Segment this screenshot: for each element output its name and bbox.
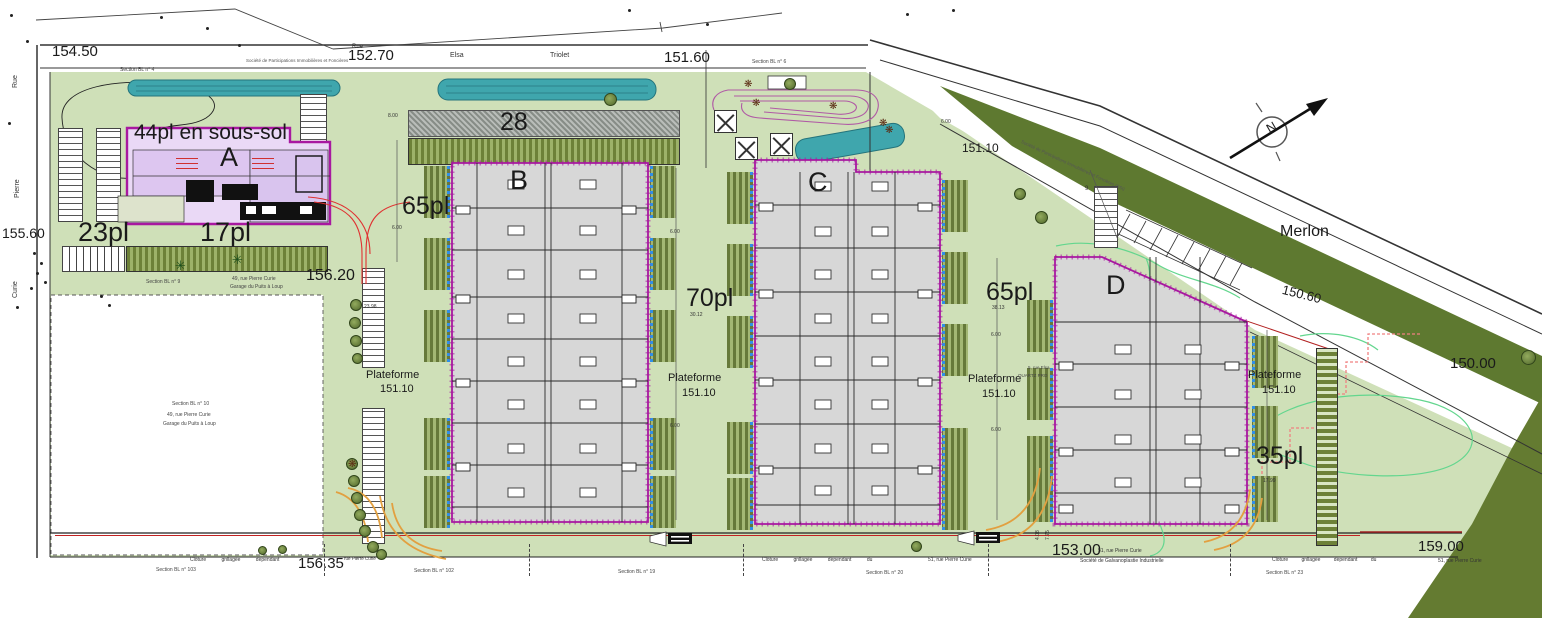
survey-dot	[238, 44, 241, 47]
tree-icon	[278, 545, 287, 554]
tree-icon	[258, 546, 267, 555]
survey-dot	[100, 295, 103, 298]
parking-28: 28	[500, 110, 528, 135]
stair-annotation	[252, 158, 274, 159]
survey-dot	[628, 9, 631, 12]
dim-4-08: 4.08	[1036, 530, 1041, 540]
tree-icon	[911, 541, 922, 552]
section-bl-23: Section BL n° 23	[1266, 571, 1303, 576]
palm-tree-icon: ✳	[175, 260, 186, 273]
dim-17-99: 17.99	[1263, 479, 1276, 484]
survey-dot	[16, 306, 19, 309]
street-triolet: Triolet	[550, 52, 569, 59]
dim-6-00-f: 6.00	[941, 120, 951, 125]
elevation-155-60: 155.60	[2, 226, 45, 240]
stair-annotation	[252, 163, 274, 164]
survey-dot	[706, 23, 709, 26]
dim-30-12: 30.12	[690, 313, 703, 318]
flower-icon: ❋	[885, 126, 893, 136]
section-bl-102: Section BL n° 102	[414, 569, 454, 574]
survey-dot	[160, 16, 163, 19]
tree-icon	[1014, 188, 1026, 200]
tree-icon	[348, 475, 360, 487]
survey-dot	[33, 252, 36, 255]
elevation-150-60: 150.60	[1281, 283, 1323, 305]
survey-dot	[26, 40, 29, 43]
parking-44pl-sous-sol: 44pl en sous-sol	[134, 122, 287, 143]
palm-tree-icon: ✳	[232, 254, 243, 267]
stair-annotation	[176, 168, 198, 169]
tree-icon	[1521, 350, 1536, 365]
stair-annotation	[252, 168, 274, 169]
tree-icon	[354, 509, 366, 521]
cloture-mid: Clôture grillagée dépendant du	[762, 558, 872, 563]
dim-38-13: 38.13	[992, 306, 1005, 311]
parcel-separator	[324, 544, 325, 576]
elevation-150-00: 150.00	[1450, 356, 1496, 371]
dim-8-00: 8.00	[388, 114, 398, 119]
flower-icon: ❋	[348, 460, 356, 470]
survey-dot	[10, 14, 13, 17]
dim-6-00-d: 6.00	[991, 428, 1001, 433]
plateforme-4-line2: 151.10	[1262, 385, 1296, 396]
stair-annotation	[176, 158, 198, 159]
parking-70pl: 70pl	[686, 286, 733, 311]
dim-7-75: 7.75	[1046, 530, 1051, 540]
section-bl-6: Section BL n° 6	[752, 60, 786, 65]
parcel-separator	[743, 544, 744, 576]
societe-participations-diag: Société de Participations Immobilières e…	[1020, 140, 1125, 192]
parcel-section-bl-10: Section BL n° 10	[172, 402, 209, 407]
plateforme-2-line2: 151.10	[682, 388, 716, 399]
flower-icon: ❋	[752, 99, 760, 109]
building-b-label: B	[510, 167, 528, 194]
dim-6-00-c: 6.00	[991, 333, 1001, 338]
elevation-151-60: 151.60	[664, 50, 710, 65]
elevation-154-50: 154.50	[52, 44, 98, 59]
plateforme-1-line1: Plateforme	[366, 370, 419, 381]
elevation-152-70: 152.70	[348, 48, 394, 63]
societe-participations-top: Société de Participations Immobilières e…	[246, 59, 348, 64]
crossed-box-icon	[714, 110, 737, 133]
dim-6-00-b: 6.00	[670, 424, 680, 429]
parcel-address-49: 49, rue Pierre Curie	[167, 413, 211, 418]
flower-icon: ❋	[829, 102, 837, 112]
parking-65pl-west: 65pl	[402, 194, 449, 219]
dim-6-00-e: 6.00	[392, 226, 402, 231]
quartz-pro: QUARTZ PRO	[1018, 374, 1047, 379]
building-c-label: C	[808, 169, 828, 196]
address-51-right: 51, rue Pierre Curie	[1438, 559, 1482, 564]
elevation-153-00: 153.00	[1052, 543, 1101, 559]
address-51-15300: 51, rue Pierre Curie	[1098, 549, 1142, 554]
tree-icon	[349, 317, 361, 329]
survey-dot	[36, 272, 39, 275]
parcel-separator	[988, 544, 989, 576]
elevation-156-35: 156.35	[298, 556, 344, 571]
flower-icon: ❋	[744, 80, 752, 90]
plateforme-2-line1: Plateforme	[668, 373, 721, 384]
tree-icon	[359, 525, 371, 537]
address-49-top: 49, rue Pierre Curie	[232, 277, 276, 282]
societe-galvanoplastie: Société de Galvanoplastie Industrielle	[1080, 559, 1164, 564]
address-156-35: rue Pierre Curie	[344, 557, 376, 562]
crossed-box-icon	[735, 137, 758, 160]
section-bl-4: Section BL n° 4	[120, 68, 154, 73]
parking-65pl-east: 65pl	[986, 280, 1033, 305]
address-51-mid: 51, rue Pierre Curie	[928, 558, 972, 563]
plateforme-3-line1: Plateforme	[968, 374, 1021, 385]
compass-north: N	[1264, 119, 1279, 135]
tree-icon	[350, 335, 362, 347]
section-bl-20: Section BL n° 20	[866, 571, 903, 576]
street-elsa: Elsa	[450, 52, 464, 59]
section-bl-9: Section BL n° 9	[146, 280, 180, 285]
parcel-separator	[1230, 544, 1231, 576]
tree-icon	[350, 299, 362, 311]
labels-layer: 154.50152.70151.60151.10155.60156.20150.…	[0, 0, 1542, 618]
elevation-159-00: 159.00	[1418, 539, 1464, 554]
parking-17pl: 17pl	[200, 219, 251, 246]
building-a-label: A	[220, 144, 238, 171]
parcel-garage: Garage du Puits à Loup	[163, 422, 216, 427]
tree-icon	[351, 492, 363, 504]
survey-dot	[30, 287, 33, 290]
tree-icon	[376, 549, 387, 560]
plateforme-3-line2: 151.10	[982, 389, 1016, 400]
street-pierre: Pierre	[14, 179, 21, 198]
building-d-label: D	[1106, 272, 1126, 299]
street-rue: Rue	[12, 75, 19, 88]
street-rue-top: Rue	[352, 44, 363, 50]
street-curie: Curie	[12, 281, 19, 298]
stair-annotation	[176, 163, 198, 164]
survey-dot	[8, 122, 11, 125]
survey-dot	[40, 262, 43, 265]
survey-dot	[952, 9, 955, 12]
tree-icon	[352, 353, 363, 364]
plateforme-4-line1: Plateforme	[1248, 370, 1301, 381]
site-plan-canvas: 154.50152.70151.60151.10155.60156.20150.…	[0, 0, 1542, 618]
section-bl-19: Section BL n° 19	[618, 570, 655, 575]
cloture-left: Clôture grillagée dépendant	[190, 558, 279, 563]
survey-dot	[108, 304, 111, 307]
elevation-156-20: 156.20	[306, 268, 355, 284]
tree-icon	[1035, 211, 1048, 224]
survey-dot	[44, 281, 47, 284]
dim-23-98: 23.98	[364, 305, 377, 310]
survey-dot	[906, 13, 909, 16]
dim-6-00-a: 6.00	[670, 230, 680, 235]
parking-35pl: 35pl	[1256, 444, 1303, 469]
tree-icon	[604, 93, 617, 106]
section-bl-103: Section BL n° 103	[156, 568, 196, 573]
cloture-right: Clôture grillagée dépendant du	[1272, 558, 1376, 563]
parcel-separator	[529, 544, 530, 576]
plateforme-1-line2: 151.10	[380, 384, 414, 395]
tree-icon	[784, 78, 796, 90]
garage-top: Garage du Puits à Loup	[230, 285, 283, 290]
dim-9: 9	[1085, 186, 1088, 192]
address-5-rue-elsa: 5, rue Elsa	[1028, 366, 1050, 371]
crossed-box-icon	[770, 133, 793, 156]
merlon-label: Merlon	[1280, 224, 1329, 240]
parking-23pl: 23pl	[78, 219, 129, 246]
survey-dot	[206, 27, 209, 30]
elevation-151-10: 151.10	[962, 142, 999, 154]
